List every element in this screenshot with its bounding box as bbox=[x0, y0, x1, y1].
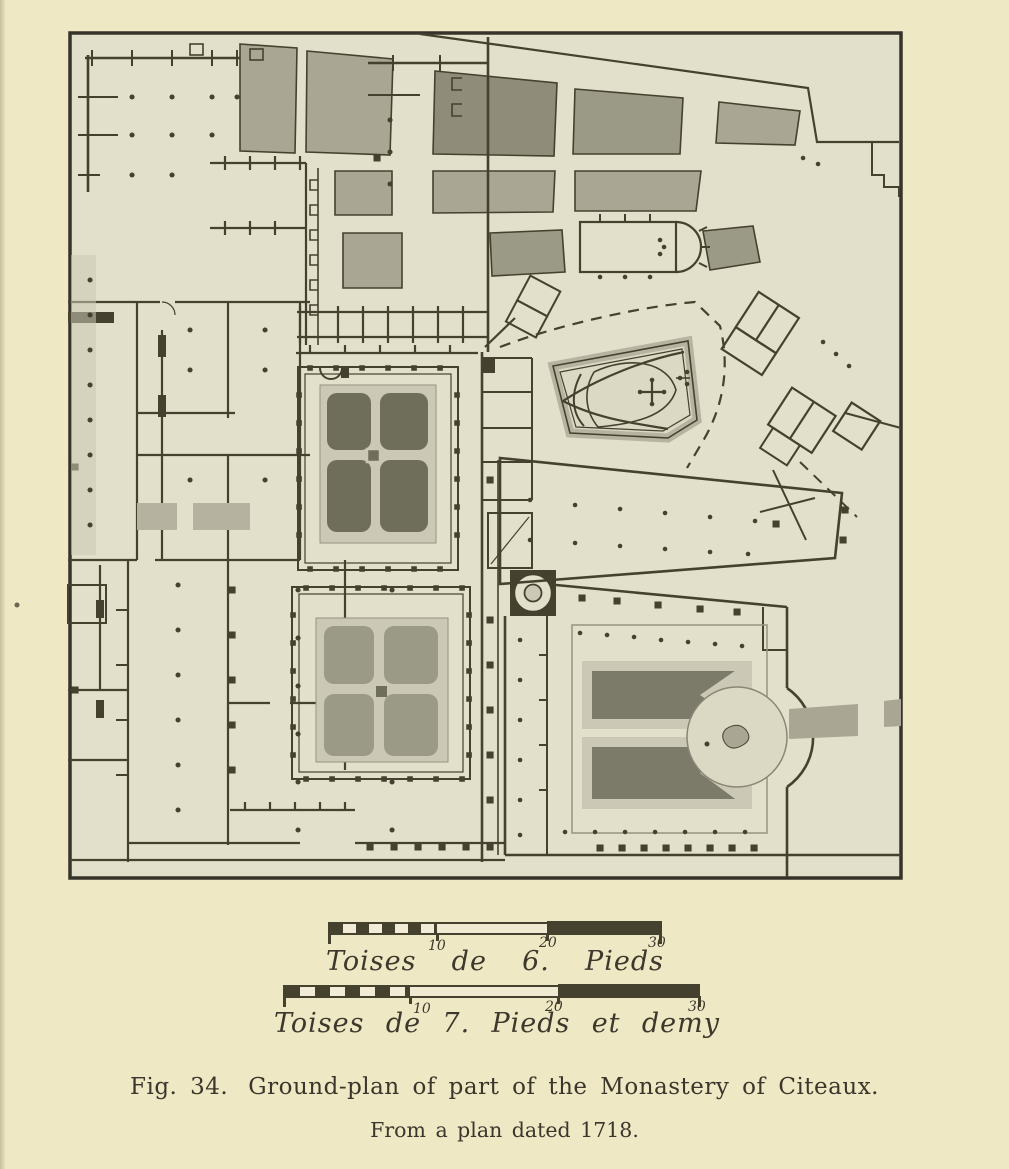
scale-word: demy bbox=[642, 1008, 720, 1039]
figure-title: Ground-plan of part of the Monastery of … bbox=[248, 1074, 879, 1100]
margin-speck bbox=[15, 603, 20, 608]
scale-bar-6-pieds-label: Toises de 6. Pieds bbox=[326, 946, 664, 977]
scale-bar-7-pieds-demy-label: Toises de 7. Pieds et demy bbox=[274, 1008, 720, 1039]
scale-segment-checkered bbox=[328, 922, 437, 935]
scale-segment-open bbox=[437, 922, 547, 935]
book-page: 10 20 30 Toises de 6. Pieds 10 20 30 Toi… bbox=[0, 0, 1009, 1169]
scale-end-tick bbox=[328, 933, 331, 944]
scale-word: Toises bbox=[274, 1008, 365, 1039]
scale-word: de bbox=[386, 1008, 421, 1039]
scale-word: et bbox=[592, 1008, 621, 1039]
scale-segment-open bbox=[410, 985, 558, 998]
figure-number: Fig. 34. bbox=[130, 1074, 228, 1100]
upper-cloister bbox=[298, 367, 458, 570]
figure-caption: Fig. 34.Ground-plan of part of the Monas… bbox=[0, 1074, 1009, 1100]
scale-word: 7. bbox=[442, 1008, 470, 1039]
scale-bar-7-pieds-demy-bar bbox=[283, 985, 700, 998]
scale-segment-solid bbox=[547, 921, 662, 935]
scale-word: 6. bbox=[522, 946, 550, 977]
scale-word: de bbox=[452, 946, 487, 977]
scale-end-tick bbox=[283, 996, 286, 1007]
scale-segment-checkered bbox=[283, 985, 410, 998]
scale-segment-solid bbox=[558, 984, 700, 998]
scale-word: Toises bbox=[326, 946, 417, 977]
scale-bar-6-pieds-bar bbox=[328, 922, 662, 935]
scale-word: Pieds bbox=[585, 946, 664, 977]
scale-word: Pieds bbox=[491, 1008, 570, 1039]
scale-mid-tick bbox=[409, 996, 412, 1004]
figure-source: From a plan dated 1718. bbox=[0, 1118, 1009, 1142]
